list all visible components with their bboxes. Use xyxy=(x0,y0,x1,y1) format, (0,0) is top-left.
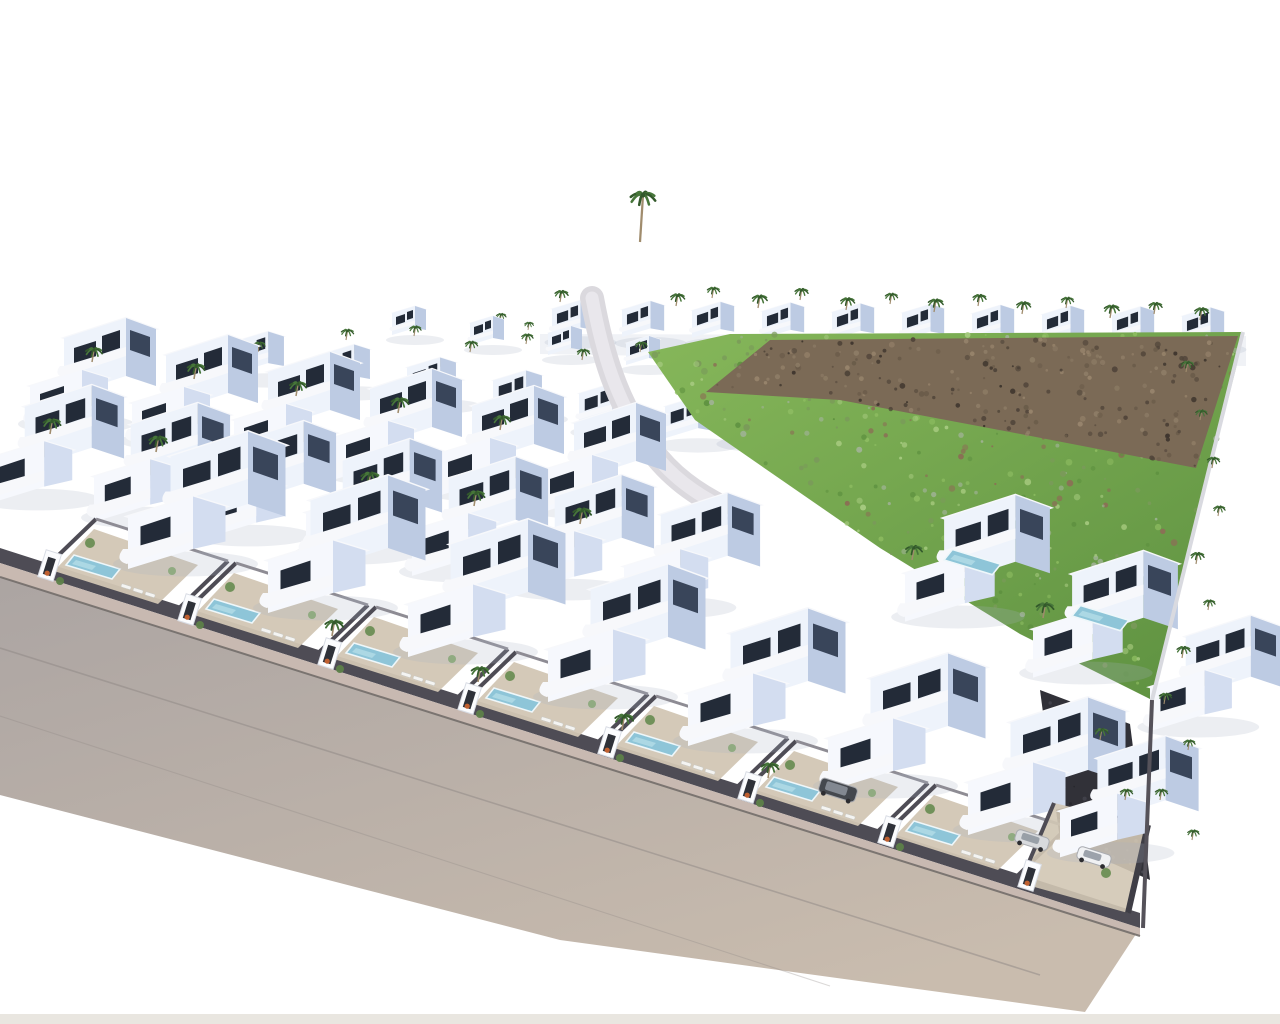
bush xyxy=(785,760,795,770)
villa xyxy=(464,316,522,355)
bush xyxy=(365,626,375,636)
bush xyxy=(505,671,515,681)
bush xyxy=(85,538,95,548)
palm-tree-icon xyxy=(885,293,897,304)
palm-tree-icon xyxy=(341,329,353,340)
bush xyxy=(1101,868,1111,878)
bush xyxy=(925,804,935,814)
aerial-render-image xyxy=(0,0,1280,1024)
palm-tree-icon xyxy=(1188,830,1199,840)
palm-tree-icon xyxy=(1214,506,1225,516)
palm-tree-icon xyxy=(525,322,534,330)
bush xyxy=(476,710,484,718)
bush xyxy=(896,843,904,851)
palm-tree-icon xyxy=(1204,600,1215,610)
palm-tree-icon xyxy=(671,294,685,306)
bush xyxy=(645,715,655,725)
palm-tree-icon xyxy=(1017,302,1031,314)
aerial-render-page xyxy=(0,0,1280,1024)
palm-tree-icon xyxy=(1191,553,1204,564)
scene-root xyxy=(0,192,1280,1024)
palm-tree-icon xyxy=(795,289,808,300)
bush xyxy=(616,754,624,762)
palm-tree-icon xyxy=(707,287,719,298)
palm-tree-icon xyxy=(522,334,533,344)
palm-tree-icon xyxy=(555,291,568,302)
villa xyxy=(386,306,444,345)
bush xyxy=(336,665,344,673)
bush xyxy=(56,577,64,585)
bush xyxy=(196,621,204,629)
palm-tree-icon xyxy=(973,295,986,306)
bottom-edge-strip xyxy=(0,1014,1280,1024)
palm-tree-icon xyxy=(631,192,655,242)
palm-tree-icon xyxy=(752,295,767,308)
bush xyxy=(225,582,235,592)
palm-tree-icon xyxy=(410,326,421,336)
bush xyxy=(756,799,764,807)
